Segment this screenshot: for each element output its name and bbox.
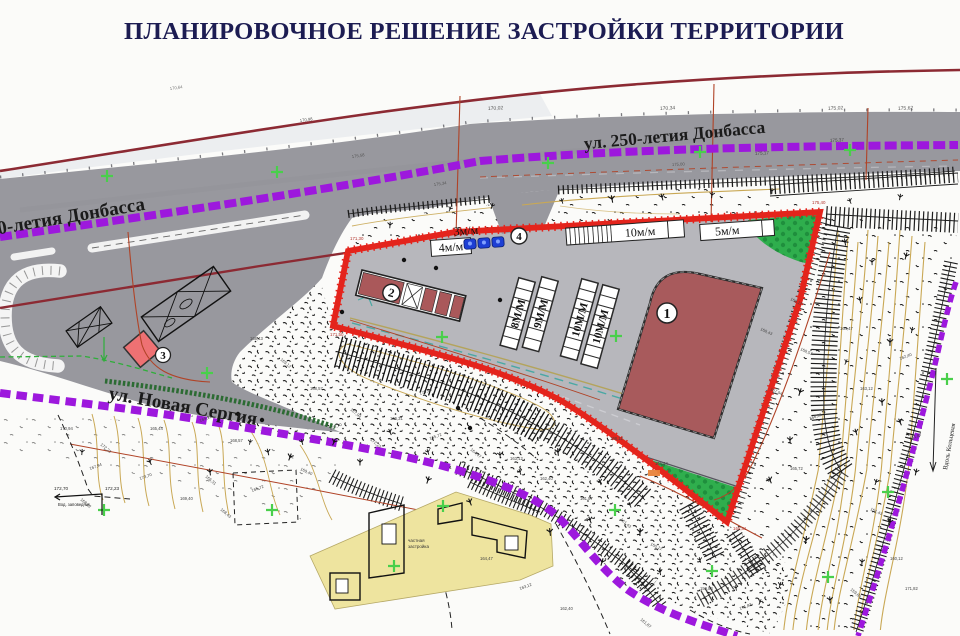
svg-text:161,87: 161,87	[580, 496, 593, 501]
svg-text:172,70: 172,70	[54, 486, 68, 491]
svg-text:Вод. заповедник: Вод. заповедник	[58, 502, 90, 507]
svg-text:171,30: 171,30	[350, 236, 364, 241]
svg-text:4м/м: 4м/м	[438, 239, 464, 255]
svg-text:166,31: 166,31	[390, 416, 403, 421]
svg-text:165,44: 165,44	[150, 426, 163, 431]
svg-text:165,44: 165,44	[655, 461, 668, 466]
svg-text:164,47: 164,47	[840, 326, 853, 331]
svg-text:162,40: 162,40	[540, 476, 553, 481]
svg-text:175,37: 175,37	[830, 137, 845, 143]
svg-text:4: 4	[516, 231, 522, 243]
svg-text:168,57: 168,57	[310, 386, 323, 391]
svg-text:175,17: 175,17	[755, 150, 770, 156]
svg-text:застройка: застройка	[408, 543, 429, 549]
svg-text:170,34: 170,34	[660, 105, 676, 112]
svg-text:10м/м: 10м/м	[624, 224, 656, 240]
svg-text:172,23: 172,23	[105, 486, 119, 491]
svg-text:170,94: 170,94	[60, 426, 73, 431]
svg-text:165,72: 165,72	[790, 466, 803, 471]
svg-text:1: 1	[664, 307, 671, 322]
svg-text:170,02: 170,02	[488, 105, 504, 112]
svg-text:5м/м: 5м/м	[714, 223, 740, 239]
svg-text:163,12: 163,12	[510, 456, 523, 461]
svg-text:168,12: 168,12	[610, 436, 623, 441]
svg-text:175,02: 175,02	[828, 105, 844, 112]
svg-text:159,84: 159,84	[700, 586, 713, 591]
svg-text:168,43: 168,43	[250, 336, 263, 341]
svg-text:169,40: 169,40	[180, 496, 193, 501]
svg-text:175,00: 175,00	[672, 161, 686, 167]
svg-text:3: 3	[160, 350, 166, 362]
svg-text:171,50: 171,50	[330, 332, 344, 337]
svg-text:165,81: 165,81	[733, 526, 747, 531]
svg-text:164,47: 164,47	[480, 556, 493, 561]
svg-text:168,57: 168,57	[230, 438, 243, 443]
svg-text:163,12: 163,12	[860, 386, 873, 391]
svg-text:162,40: 162,40	[560, 606, 573, 611]
svg-text:ПЛАНИРОВОЧНОЕ РЕШЕНИЕ ЗАСТРОЙК: ПЛАНИРОВОЧНОЕ РЕШЕНИЕ ЗАСТРОЙКИ ТЕРРИТОР…	[124, 17, 844, 45]
svg-text:3м/м: 3м/м	[453, 223, 479, 239]
svg-text:частная: частная	[408, 538, 425, 543]
svg-text:175,40: 175,40	[812, 200, 826, 205]
svg-text:160,12: 160,12	[890, 556, 903, 561]
svg-text:171,82: 171,82	[905, 586, 918, 591]
svg-text:175,62: 175,62	[898, 105, 914, 112]
